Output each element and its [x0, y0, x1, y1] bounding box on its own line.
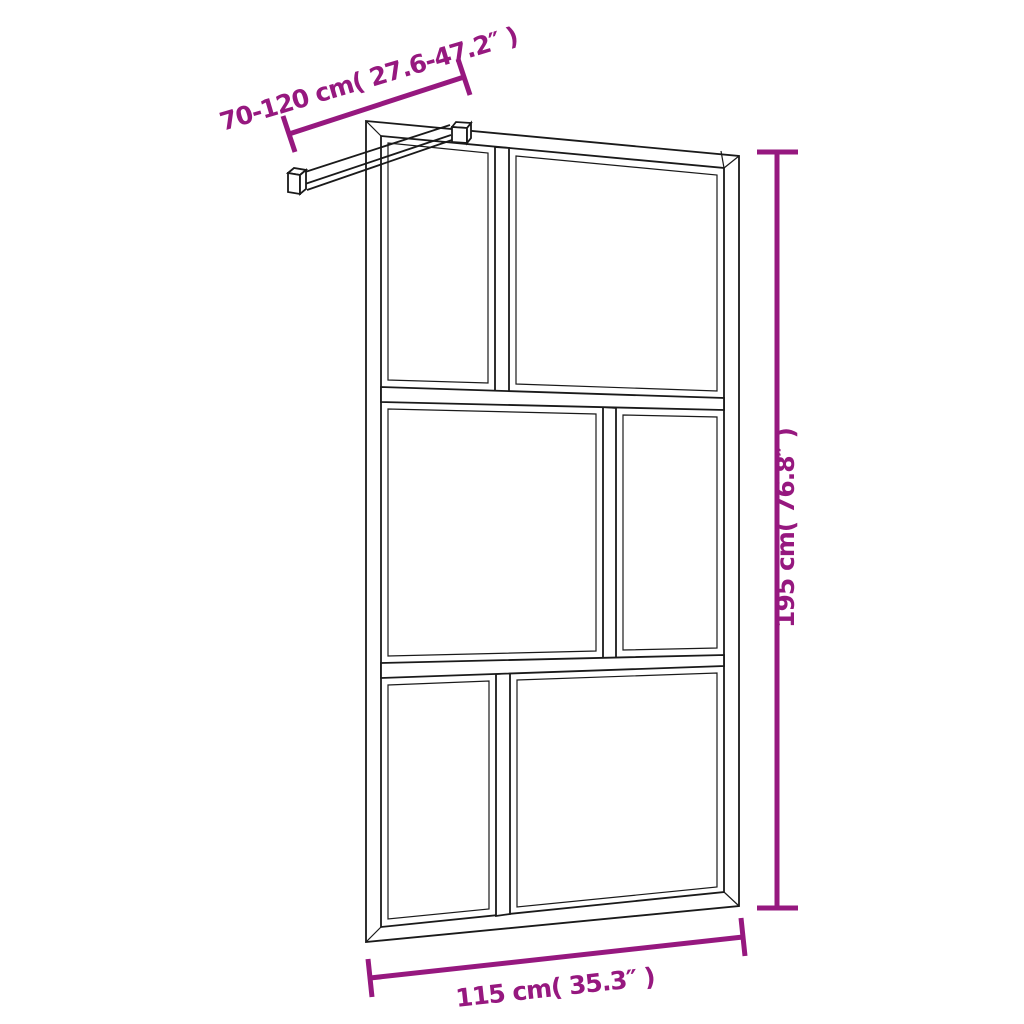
- dimension-label-height: 195 cm( 76.8″ ): [771, 428, 800, 628]
- dimension-end-tick: [368, 959, 372, 997]
- mullion-middle-row: [603, 407, 616, 658]
- dimension-end-tick: [741, 918, 745, 956]
- wall-bracket-front-face: [288, 173, 300, 194]
- frame-inner-edge: [381, 136, 724, 927]
- mullion-bottom-row: [496, 673, 510, 916]
- glass-clamp: [452, 122, 471, 143]
- wall-bracket-side-face: [300, 170, 306, 194]
- screen-frame: [366, 121, 739, 942]
- mullion-top-row: [495, 147, 509, 392]
- dimension-height: 195 cm( 76.8″ ): [757, 152, 800, 908]
- wall-bracket: [288, 168, 306, 194]
- glass-clamp-side-face: [467, 123, 471, 143]
- dimension-label-support-bar-range: 70-120 cm( 27.6-47.2″ ): [216, 21, 521, 137]
- dimension-label-width: 115 cm( 35.3″ ): [454, 962, 656, 1013]
- shower-screen-diagram-canvas: 70-120 cm( 27.6-47.2″ ) 195 cm( 76.8″ ) …: [0, 0, 1024, 1024]
- product-dimension-diagram: 70-120 cm( 27.6-47.2″ ) 195 cm( 76.8″ ) …: [0, 0, 1024, 1024]
- glass-clamp-front-face: [452, 127, 467, 143]
